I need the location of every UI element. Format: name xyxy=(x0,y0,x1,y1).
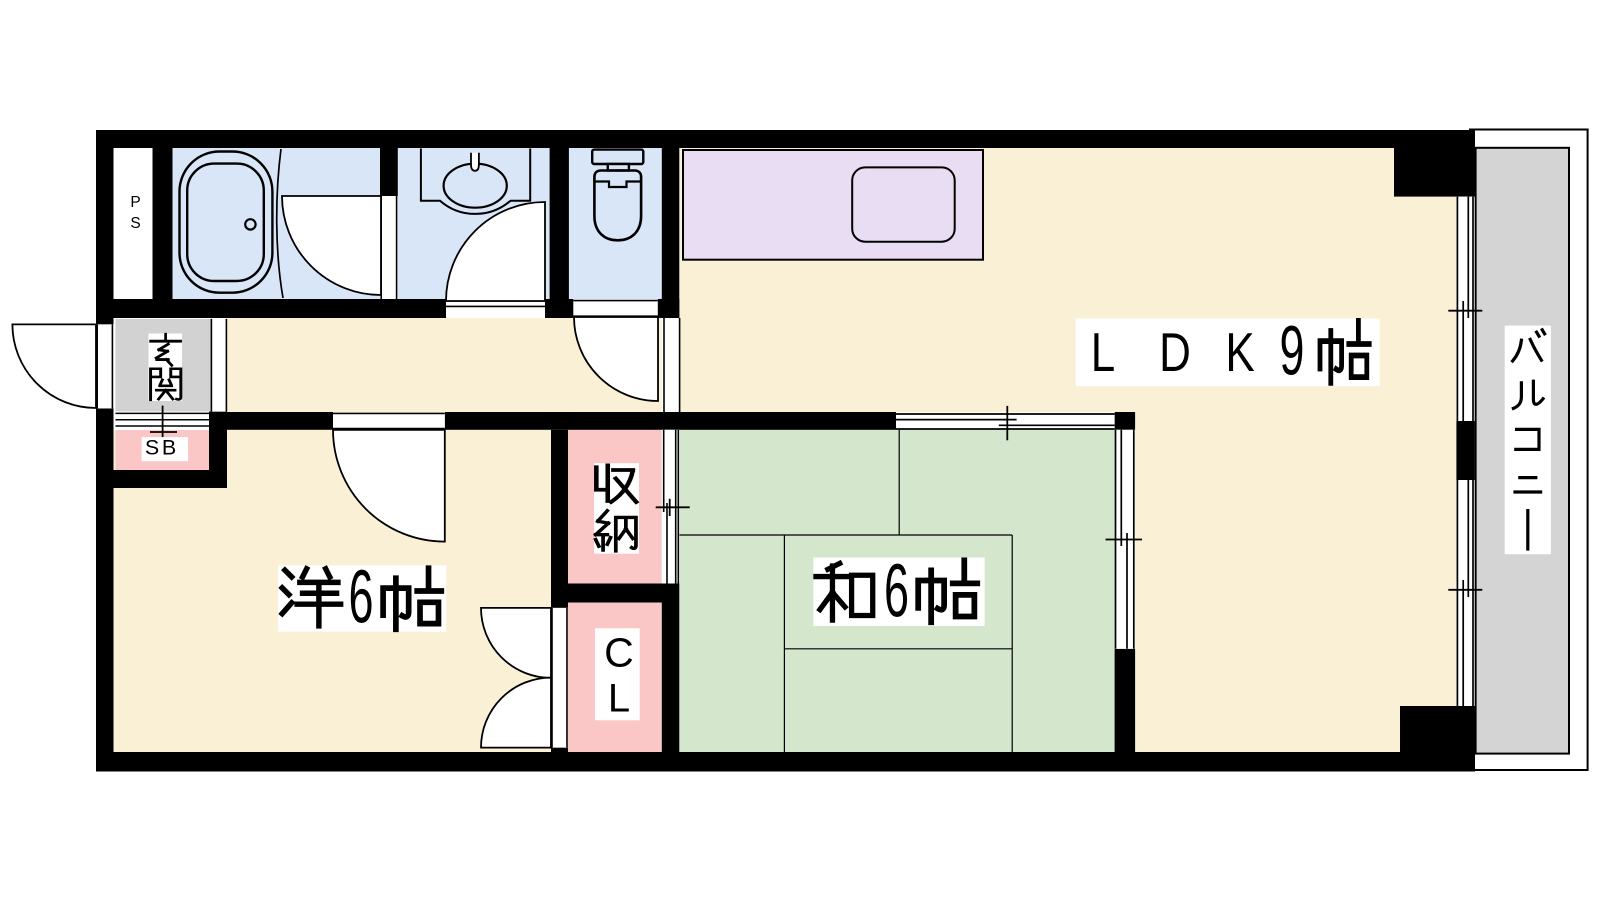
svg-text:6: 6 xyxy=(348,556,373,640)
svg-text:B: B xyxy=(162,436,176,460)
svg-text:K: K xyxy=(1225,321,1254,383)
svg-text:P: P xyxy=(130,194,140,211)
svg-text:L: L xyxy=(608,677,630,721)
svg-text:6: 6 xyxy=(884,550,909,634)
svg-text:L: L xyxy=(1091,321,1115,383)
svg-text:C: C xyxy=(604,629,634,675)
svg-text:9: 9 xyxy=(1280,312,1305,389)
svg-text:S: S xyxy=(145,436,159,460)
svg-text:D: D xyxy=(1159,321,1191,383)
svg-text:S: S xyxy=(130,215,140,232)
